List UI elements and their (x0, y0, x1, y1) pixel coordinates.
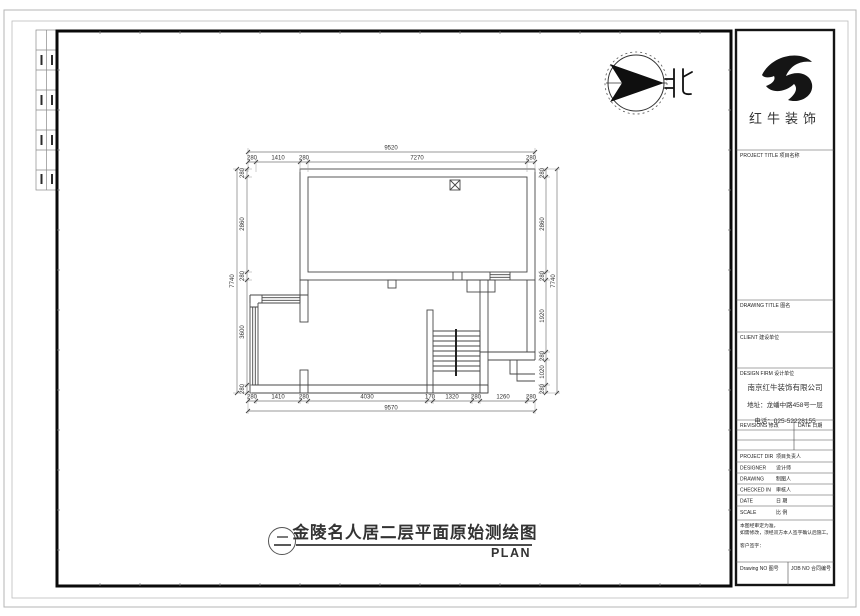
dim-label: 1020 (540, 365, 546, 379)
dim-label: 170 (425, 395, 436, 401)
dim-label: 1320 (445, 395, 459, 401)
brand-name: 红牛装饰 (749, 111, 821, 126)
dim-label: 9520 (384, 146, 398, 152)
dim-label: 280 (247, 156, 258, 162)
company-address: 地址：龙蟠中路458号一层 (747, 400, 823, 409)
drawing-title-header: DRAWING TITLE 图名 (740, 302, 790, 309)
dim-label: 280 (526, 156, 537, 162)
dim-label: 1260 (496, 395, 510, 401)
stair-wall (427, 310, 433, 393)
dimension-lines (237, 152, 557, 411)
stepped-wall (510, 360, 535, 381)
frame-ruler-ticks (57, 31, 731, 586)
field-value: 比 例 (776, 509, 787, 516)
field-label: PROJECT DIR (740, 454, 774, 460)
stamp-strip (36, 30, 57, 190)
dim-label: 2860 (540, 217, 546, 231)
dim-label: 280 (240, 383, 246, 394)
dim-label: 280 (240, 167, 246, 178)
north-compass: 北 (605, 52, 692, 114)
field-value: 日 期 (776, 499, 787, 505)
plan-title: 金陵名人居二层平面原始测绘图 (292, 522, 538, 542)
drawing-sheet: 北 (0, 0, 860, 616)
field-value: 设计师 (776, 465, 791, 472)
title-index-circle (269, 528, 296, 555)
wall-jambs (453, 272, 510, 280)
floor-plan (250, 169, 535, 393)
window-left (250, 295, 258, 393)
title-block-panel: 红牛装饰 PROJECT TITLE 项目名称 DRAWING TITLE 图名… (736, 30, 834, 585)
title-index-glyph: 二 (274, 537, 291, 545)
dim-label: 7740 (551, 274, 557, 288)
interior-wall (300, 280, 308, 393)
dim-label: 1410 (271, 156, 285, 162)
job-no-label: JOB NO 合同编号 (791, 565, 831, 572)
drawing-title-block: 二 金陵名人居二层平面原始测绘图 PLAN (269, 522, 538, 560)
right-closet (480, 280, 535, 393)
dim-label: 1410 (271, 395, 285, 401)
dim-label: 280 (526, 395, 537, 401)
dim-label: 280 (240, 270, 246, 281)
field-label: DATE (740, 499, 754, 505)
company-name: 南京红牛装饰有限公司 (748, 382, 823, 392)
dimension-labels: 9520 280 1410 280 7270 280 280 1410 280 … (230, 146, 557, 412)
bottom-wall (250, 385, 488, 393)
field-label: SCALE (740, 510, 757, 516)
field-value: 制图人 (776, 476, 791, 483)
date-header: DATE 日期 (798, 423, 822, 429)
dim-label: 2860 (240, 217, 246, 231)
flue-symbol (450, 180, 460, 190)
dim-label: 4030 (360, 395, 374, 401)
field-label: DESIGNER (740, 466, 767, 472)
plan-subtitle: PLAN (491, 546, 531, 560)
drawing-no-label: Drawing NO 图号 (740, 566, 779, 572)
note-line: 如需修改，须经双方本人签字确认后施工。 (740, 529, 831, 536)
dim-label: 280 (299, 156, 310, 162)
field-label: CHECKED IN (740, 488, 771, 494)
revisions-header: REVISIONS 修改 (740, 422, 779, 429)
dim-label: 280 (471, 395, 482, 401)
dim-label: 280 (247, 395, 258, 401)
dim-label: 280 (540, 167, 546, 178)
project-title-header: PROJECT TITLE 项目名称 (740, 152, 800, 159)
dim-label: 280 (540, 270, 546, 281)
north-label-glyph (665, 69, 692, 97)
dim-label: 280 (299, 395, 310, 401)
dim-label: 9570 (384, 406, 398, 412)
dim-label: 7740 (230, 274, 236, 288)
dim-label: 1920 (540, 309, 546, 323)
top-room-outer-wall (300, 169, 535, 280)
dim-label: 3600 (240, 325, 246, 339)
staircase (427, 310, 480, 393)
field-label: DRAWING (740, 477, 764, 483)
dim-label: 7270 (410, 156, 424, 162)
client-header: CLIENT 建设单位 (740, 334, 779, 341)
field-value: 项目负责人 (776, 453, 801, 460)
window-top (250, 295, 308, 303)
dim-label: 280 (540, 350, 546, 361)
sheet-border (4, 10, 856, 607)
firm-header: DESIGN FIRM 设计单位 (740, 370, 794, 377)
drawing-frame (57, 31, 731, 586)
note-line: 本图经审定为准， (740, 522, 778, 529)
top-room-inner-wall (308, 177, 527, 272)
cad-sheet-svg: 北 (0, 0, 860, 616)
note-signature-line: 客户签字： (740, 542, 764, 549)
wall-pier (467, 280, 495, 292)
field-value: 审核人 (776, 487, 791, 494)
dim-label: 280 (540, 383, 546, 394)
wall-pier (388, 280, 396, 288)
